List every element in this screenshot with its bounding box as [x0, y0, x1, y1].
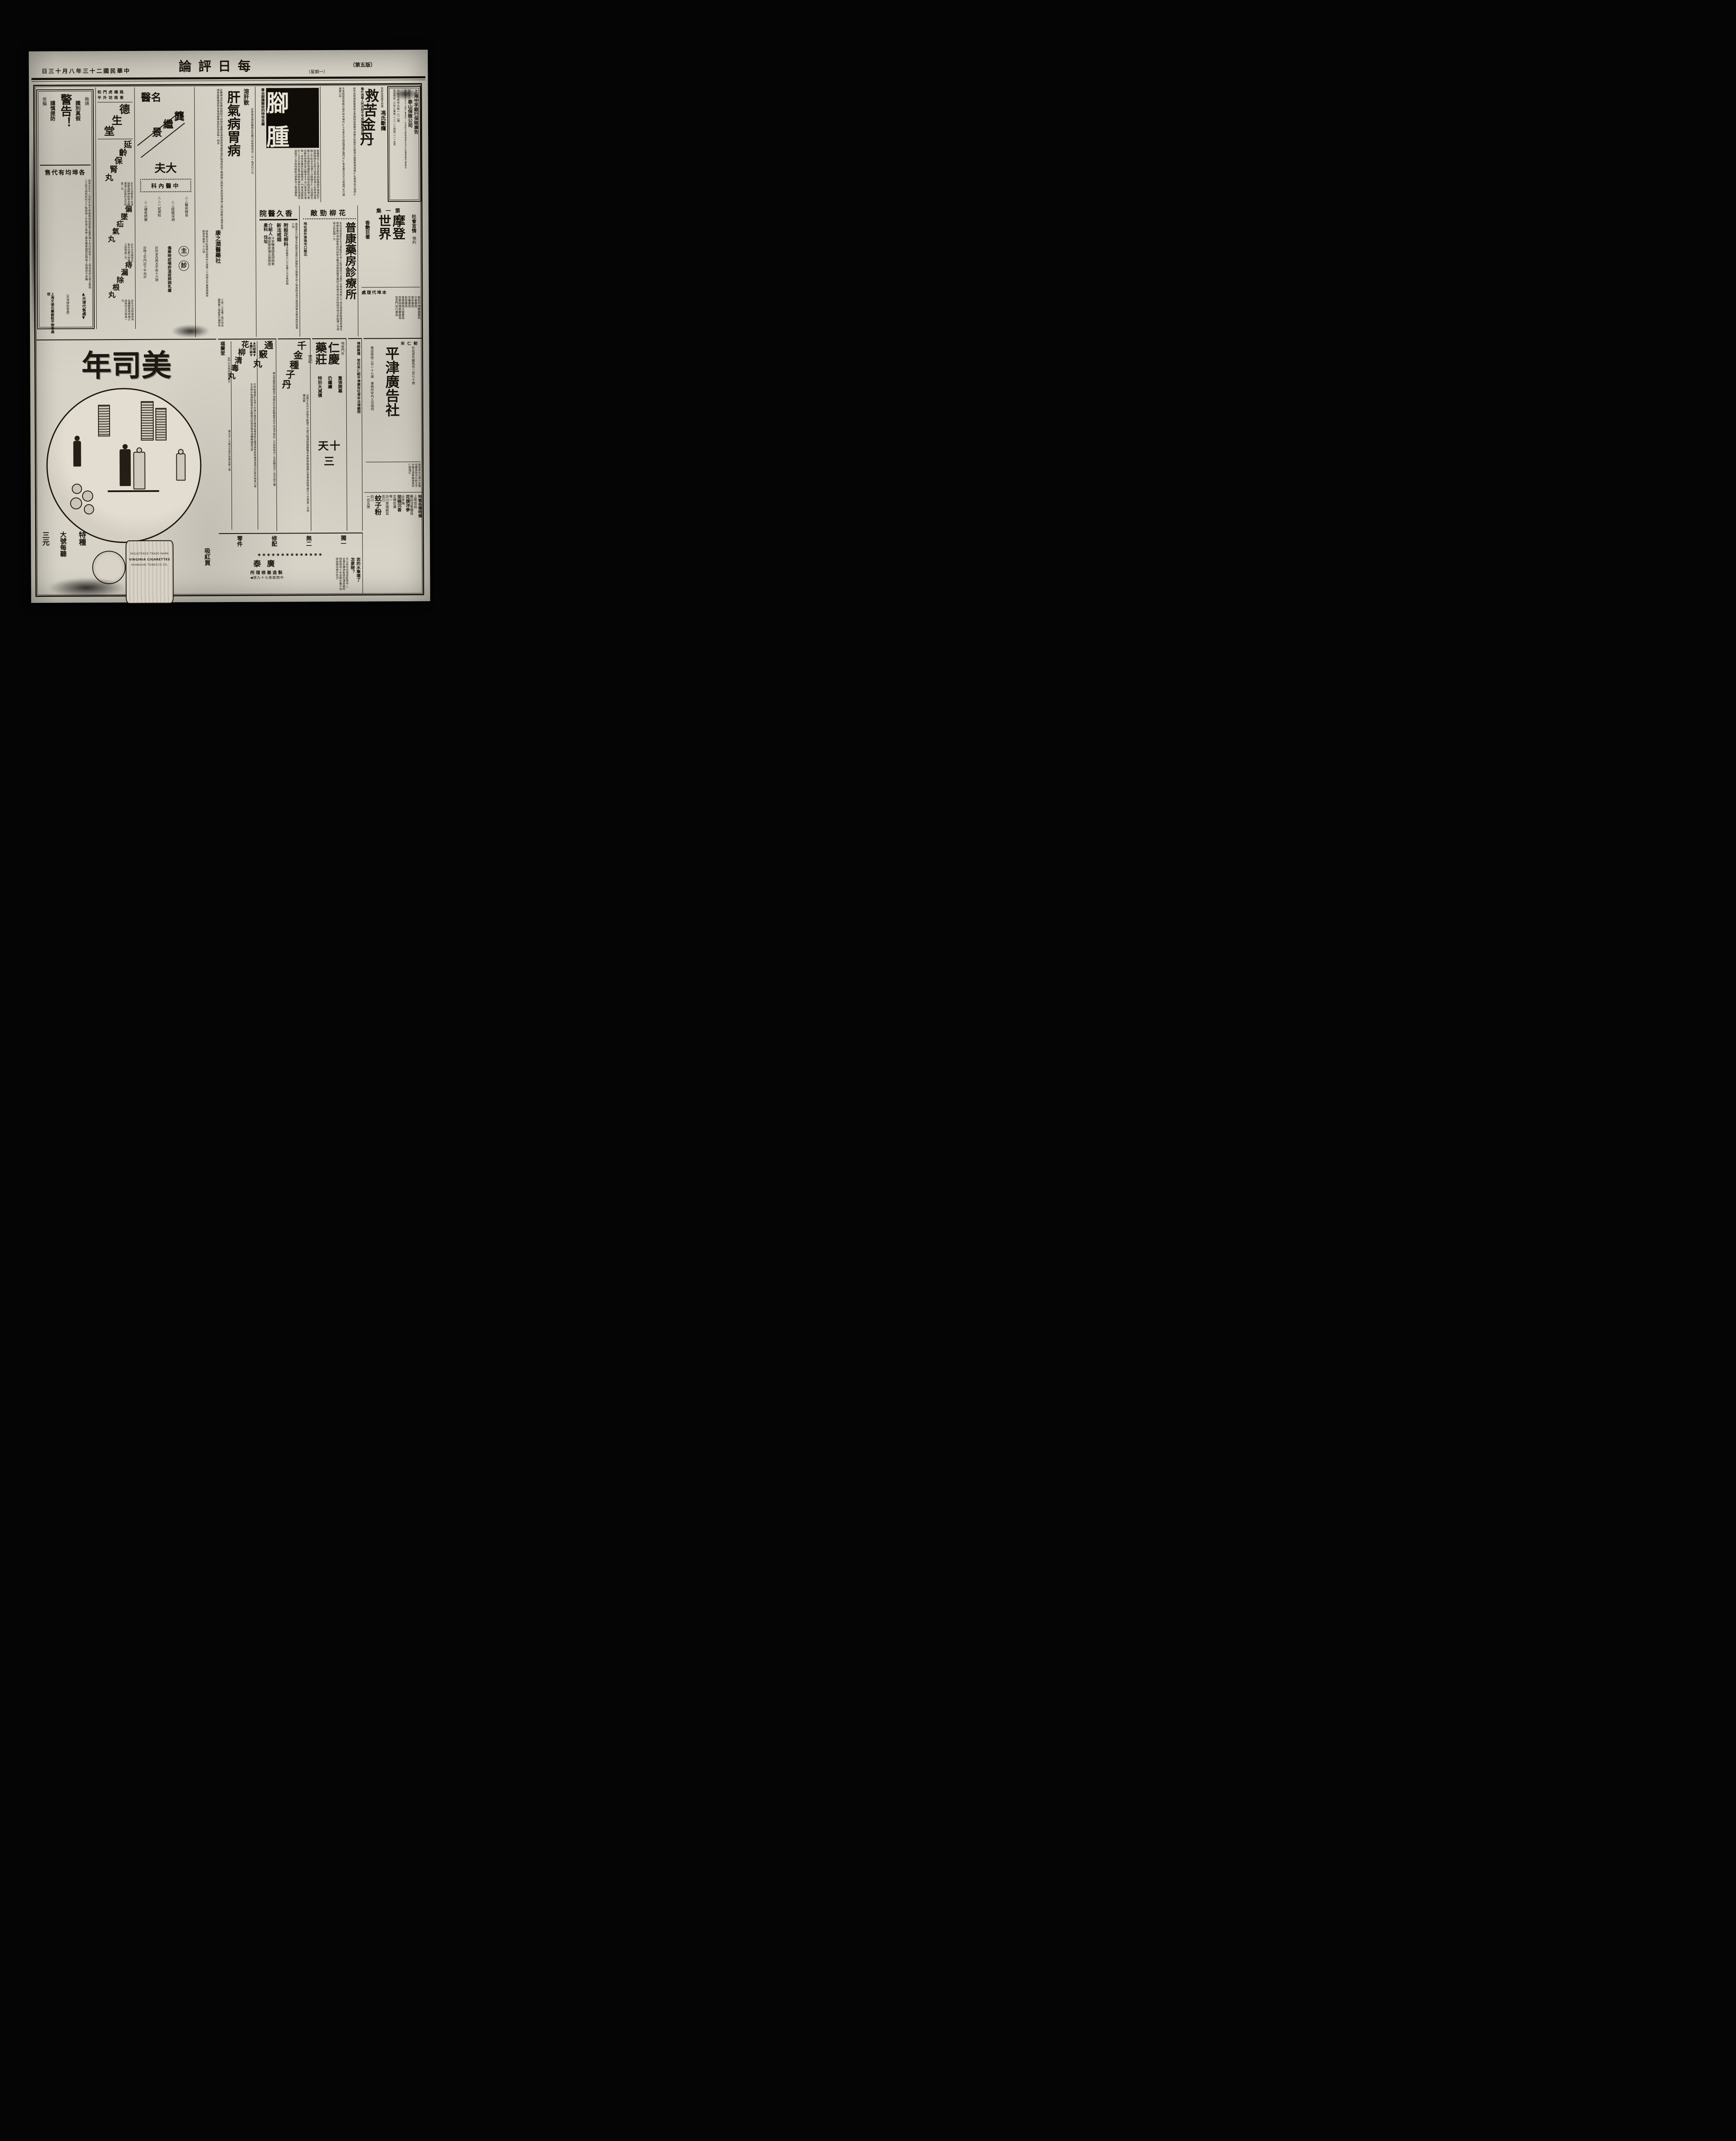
- insurance-company: 泰山保險公司: [407, 99, 412, 128]
- doctor-specialties: 傷寒時症喉痧溫疫肺病乳瘡: [167, 246, 171, 310]
- xiangjiu-title: 院醫久香: [259, 207, 298, 220]
- pen-body: 可以來所修理或配零件○定價低廉准能使您滿意敝所特製保用十年金鋼水筆不怕摔碰價目格…: [292, 558, 348, 591]
- modeng-title: 摩登世界: [376, 214, 405, 250]
- pukang-banner: 敵勁柳花: [303, 207, 356, 220]
- insurance-company-col: 茲受本行 泰山保險公司: [407, 89, 413, 199]
- renqing-event-2: 仍繼續: [327, 376, 332, 427]
- sundry-special-sale: 特售各種特備: [417, 495, 422, 591]
- introducers: 介紹人 冷家驥 憚質惠 潘國英 廖運炎 胡佩衡 吳雨臣: [267, 223, 275, 330]
- guest-head-2: [82, 490, 93, 501]
- pen-repair-ad: 獨一 無二 修配 零件 ◉◉◉◉◉◉◉◉◉◉◉◉◉◉ 您的水筆壞了 怎麼辦？ 可…: [219, 533, 363, 594]
- platform: [108, 490, 159, 492]
- modeng-preorder: 預約: [411, 236, 415, 244]
- tongqiao-ad: 通竅丸 專治耳聾耳鳴聽音不清服此丸皆能開竅見效不效退洋每料二元試用每付二毛函購加…: [257, 341, 276, 530]
- swollen-feet-main: 腳腫 脚腫臌症之先導初患時兩脚腫脹早晨復起行路猶踏棉花此病乃因腎虛氣滯久坐勞碌過…: [266, 88, 319, 201]
- medicine-zhilou-chugen-wan: 痔漏除根丸: [98, 262, 133, 299]
- pingjin-agency-ad: 宋仁軔 社址宣外騾馬市二百七十號 平津廣告社 電話南局二百一十七號 事務所安內土…: [363, 338, 423, 491]
- jindan-trademark: 蟾芝商標: [380, 97, 383, 107]
- dept-chanke: 產科: [262, 223, 267, 232]
- qingdu-title: 花柳清毒丸: [241, 341, 249, 381]
- yanling-body: 此丸主治腎氣不足虛弱夢遺精神疲倦身體遺滑之症每料五元每盒一元: [98, 182, 133, 206]
- qianjin-title: 千金種子丹: [280, 342, 308, 390]
- jindan-ad: 商部註冊 蟾芝商標 馮氏斷癮 救苦金丹 鴉片流毒人所共知不早戒除無異自殺 經中央…: [322, 86, 388, 202]
- pukang-clinic-ad: 敵勁柳花 普康藥房診療所 本所為提倡新的生活運動便利病人起見隨時可治專門治療梅毒…: [301, 206, 358, 337]
- sundry-ads: 特售各種特備 上等佳品 藥品注意優良 花旗洋參 尖羊角 茄楠沉香 定價從廉 唯一…: [364, 492, 423, 593]
- medicine-yanling-baoshen-wan: 延齡保腎丸: [98, 140, 133, 182]
- swollen-feet-body: 脚腫臌症之先導初患時兩脚腫脹早晨復起行路猶踏棉花此病乃因腎虛氣滯久坐勞碌過度脾土…: [266, 149, 319, 200]
- zhen-circled: 診: [179, 260, 189, 271]
- warning-ad: 務請 識別真假 警告！ 謹慎提防 受騙 售代有均埠各 自癸丑迄今江浙頻年發生喉癥…: [36, 89, 95, 329]
- ronggan-note: 此病者宜速就醫服此良藥可恕除根特品一元一角半打六元: [242, 108, 254, 236]
- pen-maker-line: 所理修兼造製: [241, 569, 293, 576]
- warning-divider: [40, 164, 90, 166]
- dept-zhuzhi: 住址: [262, 235, 267, 244]
- pingjin-title: 平津廣告社: [383, 346, 399, 462]
- pukang-title: 普康藥房診療所: [343, 222, 356, 333]
- renqing-name: 仁慶藥莊: [313, 342, 339, 369]
- cigarette-ad: 年司美 特種 大號每聽: [36, 339, 217, 596]
- chugen-body: 此丸主治痔漏淋漓血膿腫脹或疼痛之症每料五元每盒一元: [98, 299, 134, 321]
- jindan-registration: 商部註冊: [380, 87, 383, 97]
- deshengtang-shop-name: 德生堂: [98, 104, 133, 137]
- warning-key2: 謹慎提防: [50, 101, 55, 121]
- date-line: 日三十月八年三十二國民華中: [42, 66, 131, 75]
- introducer-6: 吳雨臣: [268, 256, 271, 266]
- page-frame: 務請 識別真假 警告！ 謹慎提防 受騙 售代有均埠各 自癸丑迄今江浙頻年發生喉癥…: [33, 83, 424, 597]
- scan-smudge-top-right: [393, 88, 419, 99]
- pen-question-2: 怎麼辦？: [349, 558, 354, 591]
- lawyer-notice: 律師蔡禮 受任宋仁軔平津廣告社常年法律顧問: [348, 338, 363, 531]
- renqing-event-1: 重張開幕: [337, 376, 342, 427]
- liver-stomach-body: 此藥專治肝氣鬱結胸悶不舒情志憂鬱思慮過度氣滯暴怒傷肝胸滿氣結不暢頭痛心跳麻木食慾…: [198, 89, 223, 230]
- pingjin-note: 敬啓者本社專代各種怪體美術字印刷文字手續迅速惠顧諸君宋仁軔謹訂: [366, 462, 420, 489]
- merit-1: △△醫術精長: [184, 195, 188, 242]
- illustration-panel-right2: [155, 408, 167, 441]
- introducer-head: 介紹人: [267, 223, 272, 236]
- attendant-figure-1: [73, 441, 81, 467]
- insurance-address: 行址北米市大街一六二號: [396, 89, 400, 199]
- merit-2: △△經驗深淵: [171, 200, 175, 243]
- sundry-mosquito-powder: 蚊子粉: [374, 495, 382, 591]
- bookstore-0: 東安市場雙義書局: [417, 296, 420, 332]
- lawyer-text: 律師蔡禮 受任宋仁軔平津廣告社常年法律顧問: [349, 342, 361, 528]
- dept-huailiu-note: 注射最新六〇六收費三元五角起碼: [283, 246, 289, 298]
- tin-label-shanghai: SHANGHAI TOBACCO CO.: [126, 564, 173, 567]
- ronggan-column: 溶肝散 此病者宜速就醫服此良藥可恕除根特品一元一角半打六元: [242, 89, 255, 334]
- clinic-address: 診所宣內西太平街十六號: [155, 246, 158, 310]
- pingjin-contact-col: 電話南局二百一十七號 事務所安內土兒胡同: [370, 346, 374, 462]
- pingjin-telephone: 電話南局二百一十七號: [370, 346, 374, 379]
- dept-huailiu: 附設花柳科: [283, 223, 288, 246]
- famous-doctor-title: 醫名: [138, 89, 193, 104]
- wedding-illustration: [46, 388, 202, 543]
- tongqiao-body: 專治耳聾耳鳴聽音不清服此丸皆能開竅見效不效退洋每料二元試用每付二毛函購加洋二毛空…: [258, 372, 276, 518]
- modern-world-ad: 集一第 社會言情 預約 摩登世界 香艷巨著 處理代埠本 東安市場雙義書局 文美書…: [360, 205, 422, 330]
- warning-subhead: 售代有均埠各: [40, 168, 90, 177]
- guest-head-4: [84, 504, 94, 514]
- masthead: 論評日每: [179, 56, 257, 75]
- modeng-subtitle: 香艷巨著: [365, 221, 370, 287]
- medicine-pianzhui-shanqi-wan: 偏墜疝氣丸: [98, 206, 133, 243]
- deshengtang-ad: 和門虎橋路 平外坊南東 德生堂 延齡保腎丸 此丸主治腎氣不足虛弱夢遺精神疲倦身體…: [95, 87, 136, 329]
- swollen-feet-ad: 腳腫 脚腫臌症之先導初患時兩脚腫脹早晨復起行路猶踏棉花此病乃因腎虛氣滯久坐勞碌過…: [257, 86, 321, 203]
- deshengtang-rule2: [98, 138, 133, 139]
- brand-characters: 年司美: [36, 340, 216, 385]
- swollen-feet-title: 腳腫: [266, 88, 319, 148]
- introducer-5: 胡佩衡: [271, 256, 274, 266]
- liver-stomach-addresses: 總售處北平新橋南石胡同內九道灣二十四號北平東單牌樓西觀音寺路南二十六號: [202, 230, 208, 298]
- jindan-maker-name: 馮氏斷癮: [380, 110, 386, 131]
- renqing-tang: 堂記: [307, 355, 312, 369]
- warning-plea: 務請: [84, 97, 89, 105]
- jindan-title: 救苦金丹: [365, 89, 379, 201]
- deshengtang-address-row1: 和門虎橋路: [98, 89, 133, 95]
- renqing-ad: 地安門外 仁慶藥莊 堂記 重張開幕 仍繼續 特別大減價 天十三: [312, 338, 347, 531]
- groom-figure: [119, 449, 131, 486]
- pen-header-duyi: 獨一: [339, 535, 345, 552]
- kangzhijian-maker: 康之澗醫藥社: [214, 230, 220, 298]
- insurance-telephones: 電話南局二六零七東局二二八一三西局二二一五零: [390, 89, 396, 199]
- doctor-specialty-box: 科內醫中: [140, 179, 191, 192]
- tin-body: REGISTERED TRADE MARK VIRGINIA CIGARETTE…: [125, 540, 174, 604]
- agents-header: 處理代埠本: [362, 287, 420, 295]
- introducer-4: 廖運炎: [267, 246, 271, 256]
- bride-figure: [133, 452, 145, 489]
- warning-body: 自癸丑迄今江浙頻年發生喉癥聘請德國著名醫學博士赤白痢疾等七十二險症經部化驗立案救…: [40, 179, 91, 291]
- zhuzhen-column: 主 診: [179, 246, 190, 310]
- zhu-circled: 主: [179, 246, 189, 256]
- pen-question-1: 您的水筆壞了: [355, 558, 360, 591]
- scan-smudge-left: [30, 128, 37, 343]
- fulantang-name: 福蘭堂: [220, 341, 225, 355]
- merit-4: △△確有把握: [143, 200, 147, 243]
- introducer-3: 潘國英: [271, 246, 274, 256]
- qianjin-ad: 千金種子丹 治男子先天不足後天虧損下元虛冷精清嗣續艱難年老精衰腦虛健忘畏寒痼症等…: [278, 338, 311, 531]
- xiangjiu-depts: 附設花柳科 注射最新六〇六收費三元五角起碼 新法戒烟 介紹人 冷家驥 憚質惠 潘…: [262, 223, 289, 330]
- qingdu-ad: ▲花柳專▼ ▲藥行銷▼ 花柳清毒丸 花柳餘毒蘊於血液之中積久毒發生楊梅結毒疳瘡紅…: [231, 341, 258, 530]
- warning-key1: 識別真假: [75, 101, 80, 121]
- xiangjiu-intro: 趙君香久行醫多年經驗宏富對於婦嬰科尤稱聖手部人等或經治愈沉痾或得親友報告故特負責…: [288, 223, 298, 330]
- price-amount: 三元: [41, 531, 49, 592]
- swollen-feet-side-label: 專治脚腫臌症的特效良藥: [259, 88, 265, 201]
- ronggan-san: 溶肝散: [242, 89, 248, 105]
- clinic-hours: 診時上午門診下午出診: [143, 246, 147, 310]
- illustration-panel-right: [141, 401, 154, 441]
- jindan-and-insurance: 上海中孚銀行保險廣告 茲受本行 泰山保險公司 委託經理水火人壽汽車意外一切保險手…: [322, 86, 421, 202]
- insurance-title: 上海中孚銀行保險廣告: [413, 89, 419, 199]
- masthead-rule-thin: [31, 80, 425, 82]
- small-medicine-columns: 通竅丸 專治耳聾耳鳴聽音不清服此丸皆能開竅見效不效退洋每料二元試用每付二毛函購加…: [218, 339, 277, 532]
- pen-maker-name: 泰廣: [241, 558, 292, 569]
- qingdu-price: 價大洋二元每付五角外埠寄加郵二角: [220, 430, 231, 503]
- dept-jieyan: 新法戒烟: [276, 223, 282, 330]
- deshengtang-rule1: [98, 102, 133, 102]
- edition-label: （第五版）: [350, 61, 375, 69]
- liver-stomach-prices: 小盒一元定價二角外埠函購寄費三角郵票代價照用: [199, 298, 223, 328]
- pen-header-xiupei: 修配: [270, 536, 276, 553]
- renqing-thirty-days: 天十三: [314, 438, 345, 468]
- insurance-ad: 上海中孚銀行保險廣告 茲受本行 泰山保險公司 委託經理水火人壽汽車意外一切保險手…: [387, 86, 421, 202]
- pukang-body: 本所為提倡新的生活運動便利病人起見隨時可治專門治療梅毒魚口下疳白濁骨節酸痛耳鳴喉…: [309, 222, 342, 333]
- deshengtang-address-row2: 平外坊南東: [98, 95, 133, 100]
- qianjin-body: 治男子先天不足後天虧損下元虛冷精清嗣續艱難年老精衰腦虛健忘畏寒痼症等每打十元每盒…: [280, 394, 309, 514]
- xiangjiu-hospital-ad: 院醫久香 趙君香久行醫多年經驗宏富對於婦嬰科尤稱聖手部人等或經治愈沉痾或得親友報…: [258, 206, 300, 337]
- pingjin-address: 社址宣外騾馬市二百七十號: [408, 346, 416, 462]
- warning-tianjin-agent: ▲天津代售處▼: [81, 292, 85, 335]
- tongqiao-title: 通竅丸: [257, 341, 275, 369]
- fulantang-column: 福蘭堂 前門外李鐵拐斜街路北 價大洋二元每付五角外埠寄加郵二角: [219, 341, 232, 530]
- cigarette-slogan: 吸紅買: [203, 548, 210, 566]
- introducer-1: 冷家驥: [271, 237, 274, 247]
- fulantang-address: 前門外李鐵拐斜街路北: [220, 357, 230, 430]
- pen-maker-address: ◀號九十七南路間中: [241, 575, 293, 580]
- weekday-label: （星期一）: [306, 68, 328, 75]
- pingjin-principal: 宋仁軔: [365, 340, 420, 346]
- pen-maker-zone: 泰廣 所理修兼造製 ◀號九十七南路間中: [241, 558, 292, 591]
- warning-tianjin-wholesale: （天津總批發處）: [66, 292, 69, 335]
- newspaper-scan: 日三十月八年三十二國民華中 論評日每 （星期一） （第五版） 務請 識別真假 警…: [0, 0, 434, 640]
- scan-smudge-center: [171, 325, 210, 337]
- pingjin-office: 事務所安內土兒胡同: [370, 382, 374, 411]
- warning-maker: 上海文達氏藥廠駐平辦事處啓: [46, 292, 54, 335]
- introducer-2: 憚質惠: [267, 237, 271, 247]
- pen-header-lingjian: 零件: [235, 536, 241, 553]
- attendant-figure-2: [176, 453, 185, 480]
- modeng-volume: 集一第: [361, 207, 420, 215]
- liver-stomach-ad: 溶肝散 此病者宜速就醫服此良藥可恕除根特品一元一角半打六元 肝氣病胃病 此藥專治…: [197, 87, 257, 337]
- newspaper-page: 日三十月八年三十二國民華中 論評日每 （星期一） （第五版） 務請 識別真假 警…: [29, 50, 430, 603]
- illustration-panel-center: [98, 405, 110, 436]
- tin-registered-mark: REGISTERED TRADE MARK: [126, 552, 173, 555]
- doctor-dafu: 夫大: [138, 159, 193, 176]
- qingdu-body: 花柳餘毒蘊於血液之中積久毒發生楊梅結毒疳瘡紅腫潰爛骨節疼痛週身現出紅斑疹喉疼口臭…: [233, 383, 256, 490]
- tin-label-virginia: VIRGINIA CIGARETTES: [126, 558, 173, 561]
- guest-head-1: [72, 484, 82, 494]
- pen-header-wuer: 無二: [305, 535, 311, 552]
- renqing-place: 地安門外: [340, 342, 344, 369]
- doctor-name-banner: 龔繼景: [138, 104, 193, 160]
- liver-stomach-title: 肝氣病胃病: [225, 90, 241, 334]
- shanqi-body: 此丸主治偏墜疝氣左右牽引疼痛之症每盒二元: [98, 243, 133, 262]
- modeng-genre-col: 社會言情 預約: [411, 214, 417, 287]
- pen-dotted-divider: ◉◉◉◉◉◉◉◉◉◉◉◉◉◉: [221, 552, 360, 557]
- renqing-event-3: 特別大減價: [317, 376, 322, 427]
- doctor-name: 龔繼景: [174, 111, 185, 143]
- insurance-body: 委託經理水火人壽汽車意外一切保險手續簡便價目克已如蒙賜顧不勝歡迎: [400, 89, 407, 199]
- scan-smudge-bottom: [48, 578, 125, 598]
- warning-dupe: 受騙: [42, 97, 46, 106]
- jindan-reg-col: 商部註冊 蟾芝商標 馮氏斷癮: [380, 87, 386, 201]
- jindan-distributors: 天津總號西馬路分號天祥市場內◎千芝堂北平總經理處正陽門外◎會友書社北平代售處門外…: [335, 87, 345, 197]
- famous-doctor-ad: 醫名 龔繼景 夫大 科內醫中 △△醫術精長 △△經驗深淵 △△一試便知 △△確有…: [137, 87, 196, 337]
- warning-title: 警告！: [59, 94, 71, 128]
- liver-stomach-content: 此藥專治肝氣鬱結胸悶不舒情志憂鬱思慮過度氣滯暴怒傷肝胸滿氣結不暢頭痛心跳麻木食慾…: [198, 89, 223, 334]
- pukang-address: 地址前外東珠市口路北: [303, 222, 307, 333]
- jindan-endorsements: 經中央禁煙委員會張主席題除惡務盡中央衛生試驗所化驗津市展覽會得特獎◎社會局出示保…: [344, 87, 356, 197]
- modeng-genre: 社會言情: [411, 214, 416, 233]
- guest-head-3: [70, 498, 82, 510]
- merit-3: △△一試便知: [157, 196, 161, 243]
